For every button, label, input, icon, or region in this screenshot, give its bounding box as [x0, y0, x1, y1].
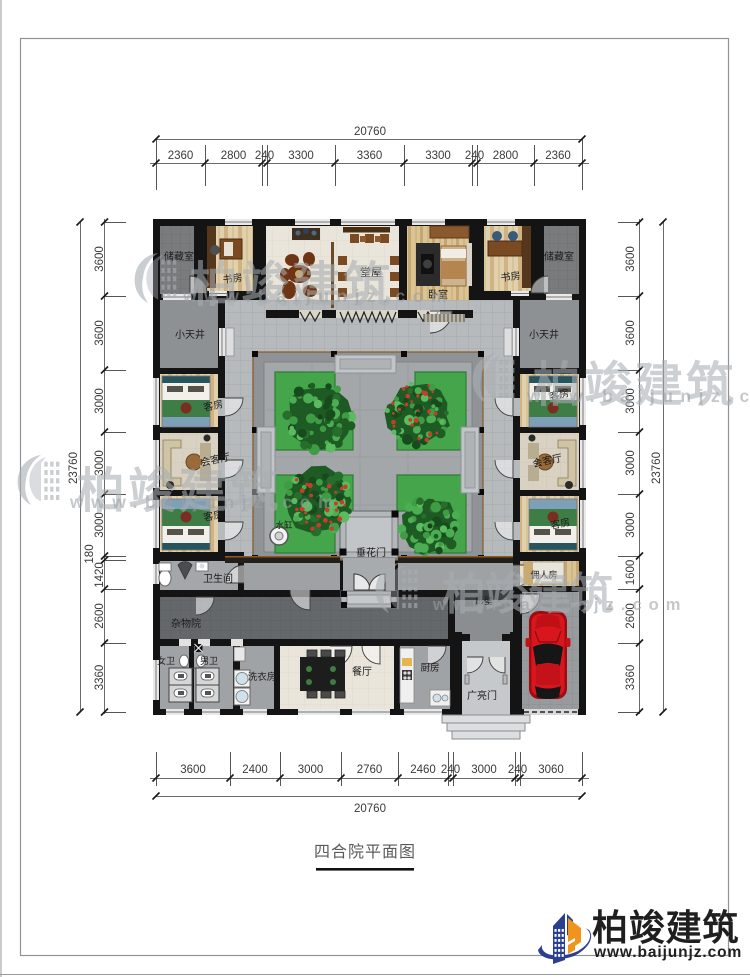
svg-text:洗衣房: 洗衣房 — [248, 671, 277, 683]
svg-text:垂花门: 垂花门 — [356, 546, 386, 559]
svg-text:水缸: 水缸 — [275, 520, 293, 530]
svg-text:www.baijunjz.com: www.baijunjz.com — [182, 286, 454, 306]
svg-text:240: 240 — [441, 764, 460, 776]
svg-text:240: 240 — [465, 150, 484, 162]
svg-text:2760: 2760 — [357, 764, 383, 776]
svg-text:3360: 3360 — [94, 665, 106, 691]
svg-text:3360: 3360 — [357, 150, 383, 162]
svg-text:3060: 3060 — [538, 764, 564, 776]
svg-text:www.baijunjz.com: www.baijunjz.com — [432, 596, 687, 614]
svg-text:杂物院: 杂物院 — [171, 617, 201, 630]
svg-text:www.baijunjz.com: www.baijunjz.com — [69, 492, 341, 512]
svg-text:3000: 3000 — [625, 512, 637, 538]
svg-text:3600: 3600 — [94, 246, 106, 272]
svg-text:卫生间: 卫生间 — [203, 572, 233, 585]
svg-text:3600: 3600 — [180, 764, 206, 776]
svg-text:3300: 3300 — [288, 150, 314, 162]
svg-text:20760: 20760 — [354, 803, 386, 815]
svg-text:3600: 3600 — [625, 246, 637, 272]
svg-text:广亮门: 广亮门 — [467, 689, 497, 702]
svg-text:23760: 23760 — [651, 452, 663, 484]
svg-text:20760: 20760 — [354, 126, 386, 138]
svg-text:3600: 3600 — [94, 320, 106, 346]
svg-text:2360: 2360 — [545, 150, 571, 162]
svg-text:2360: 2360 — [168, 150, 194, 162]
svg-text:小天井: 小天井 — [529, 328, 559, 341]
svg-text:小天井: 小天井 — [175, 328, 205, 341]
svg-text:女卫: 女卫 — [157, 655, 175, 666]
svg-text:储藏室: 储藏室 — [544, 250, 574, 263]
svg-text:2400: 2400 — [242, 764, 268, 776]
svg-text:1600: 1600 — [625, 560, 637, 586]
svg-text:240: 240 — [255, 150, 274, 162]
svg-text:www.baijunjz.com: www.baijunjz.com — [526, 386, 750, 406]
svg-text:2800: 2800 — [221, 150, 247, 162]
svg-text:3000: 3000 — [298, 764, 324, 776]
svg-text:2800: 2800 — [493, 150, 519, 162]
svg-text:男卫: 男卫 — [200, 656, 218, 666]
svg-text:3360: 3360 — [625, 665, 637, 691]
svg-text:2460: 2460 — [410, 764, 436, 776]
svg-text:柏竣建筑: 柏竣建筑 — [592, 907, 739, 948]
svg-text:餐厅: 餐厅 — [352, 665, 372, 678]
svg-text:180: 180 — [84, 544, 96, 563]
svg-text:3000: 3000 — [94, 388, 106, 414]
svg-text:www.baijunjz.com: www.baijunjz.com — [593, 944, 742, 961]
svg-text:3600: 3600 — [625, 320, 637, 346]
svg-text:3300: 3300 — [425, 150, 451, 162]
svg-text:厨房: 厨房 — [420, 662, 439, 674]
svg-text:2600: 2600 — [94, 603, 106, 629]
svg-text:四合院平面图: 四合院平面图 — [314, 843, 416, 861]
svg-text:240: 240 — [508, 764, 527, 776]
svg-text:3000: 3000 — [471, 764, 497, 776]
svg-text:1420: 1420 — [94, 562, 106, 588]
svg-text:3000: 3000 — [625, 450, 637, 476]
